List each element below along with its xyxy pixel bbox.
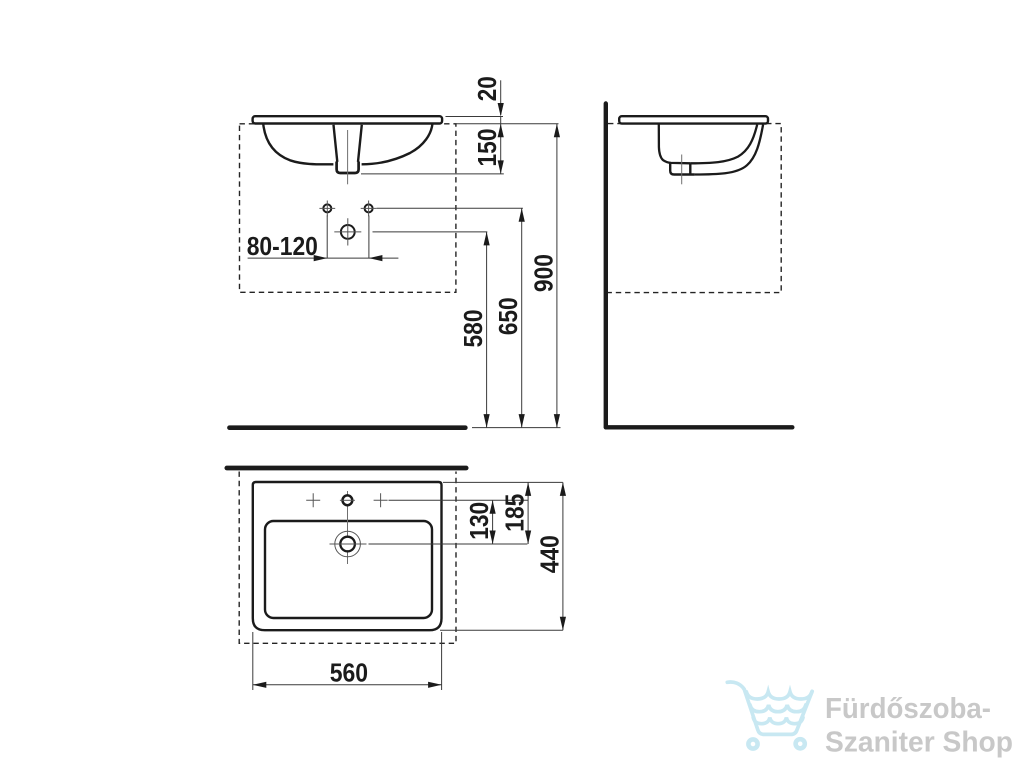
svg-text:Fürdőszoba-: Fürdőszoba- <box>825 693 991 725</box>
svg-text:150: 150 <box>472 129 502 167</box>
svg-text:580: 580 <box>458 310 488 348</box>
svg-text:560: 560 <box>330 658 368 688</box>
svg-text:185: 185 <box>500 494 530 532</box>
svg-text:20: 20 <box>472 76 502 101</box>
svg-text:80-120: 80-120 <box>247 231 318 261</box>
svg-text:900: 900 <box>528 254 558 292</box>
svg-text:650: 650 <box>493 297 523 335</box>
svg-text:130: 130 <box>464 502 494 540</box>
svg-text:Szaniter Shop: Szaniter Shop <box>825 727 1013 759</box>
svg-text:440: 440 <box>534 535 564 573</box>
